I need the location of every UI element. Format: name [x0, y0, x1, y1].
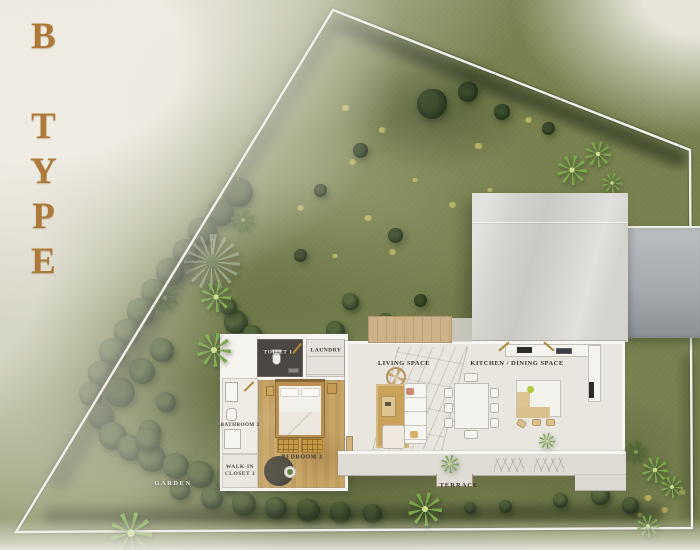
dining-chair — [444, 418, 453, 428]
dining-chair — [464, 430, 478, 439]
bathroom-wc-icon — [226, 408, 237, 421]
label-bedroom-3: BEDROOM 3 — [282, 454, 323, 462]
room-laundry — [306, 339, 345, 377]
rattan-rug — [277, 438, 299, 453]
palm-tree — [110, 512, 152, 550]
armchair — [382, 425, 405, 449]
palm-tree — [197, 333, 231, 367]
bed-pillow — [301, 388, 320, 397]
label-terrace: TERRACE — [440, 482, 479, 490]
bathroom-vanity-icon — [225, 382, 238, 402]
site-plan: TOILET 1 LAUNDRY LIVING SPACE KITCHEN / … — [0, 0, 700, 550]
dining-table — [454, 383, 489, 429]
palm-tree — [637, 515, 659, 537]
sofa-pillow — [406, 388, 414, 395]
label-toilet-1: TOILET 1 — [263, 350, 292, 357]
label-kitchen-dining: KITCHEN / DINING SPACE — [470, 360, 563, 368]
label-laundry: LAUNDRY — [311, 348, 342, 355]
fruit-bowl-icon — [527, 386, 534, 393]
island-stool — [546, 419, 555, 426]
dining-chair — [490, 403, 499, 413]
lounge-chair-outline — [494, 458, 524, 472]
label-walk-in-closet-3: WALK-IN CLOSET 3 — [217, 464, 263, 478]
palm-tree — [661, 476, 683, 498]
island-stool — [532, 419, 541, 426]
entry-landing — [452, 318, 472, 342]
dining-chair — [444, 388, 453, 398]
fridge-icon — [589, 382, 594, 398]
toilet-sink-icon — [288, 368, 299, 373]
entry-deck — [368, 316, 452, 343]
kitchen-sink-icon — [556, 348, 572, 354]
terrace-apron — [575, 475, 626, 491]
label-living-space: LIVING SPACE — [378, 360, 430, 368]
plan-type-title: B TYPE — [22, 16, 65, 286]
palm-tree — [625, 441, 647, 463]
dining-chair — [464, 373, 478, 382]
building-roof — [472, 193, 628, 342]
palm-tree — [441, 455, 459, 473]
palm-tree — [539, 433, 555, 449]
driveway — [628, 226, 700, 338]
palm-tree — [408, 492, 442, 526]
rattan-rug — [301, 438, 323, 453]
island-wood-panel — [517, 407, 550, 418]
bed-pillow — [280, 388, 299, 397]
dining-chair — [490, 388, 499, 398]
coffee-table — [381, 396, 396, 417]
terrace-area — [338, 451, 626, 476]
lounge-chair-outline — [534, 458, 564, 472]
dining-chair — [444, 403, 453, 413]
sofa-pillow — [410, 431, 418, 438]
cooktop-icon — [517, 347, 532, 353]
bathroom-shower-icon — [224, 429, 241, 449]
nightstand — [327, 383, 337, 394]
dining-chair — [490, 418, 499, 428]
bed-duvet — [279, 412, 321, 435]
label-garden: GARDEN — [154, 480, 191, 488]
label-bathroom-3: BATHROOM 3 — [221, 423, 260, 429]
pot-plant-icon — [287, 469, 293, 475]
roof-seam — [472, 222, 628, 224]
kitchen-island — [516, 380, 561, 417]
bedside-stool — [266, 386, 274, 396]
